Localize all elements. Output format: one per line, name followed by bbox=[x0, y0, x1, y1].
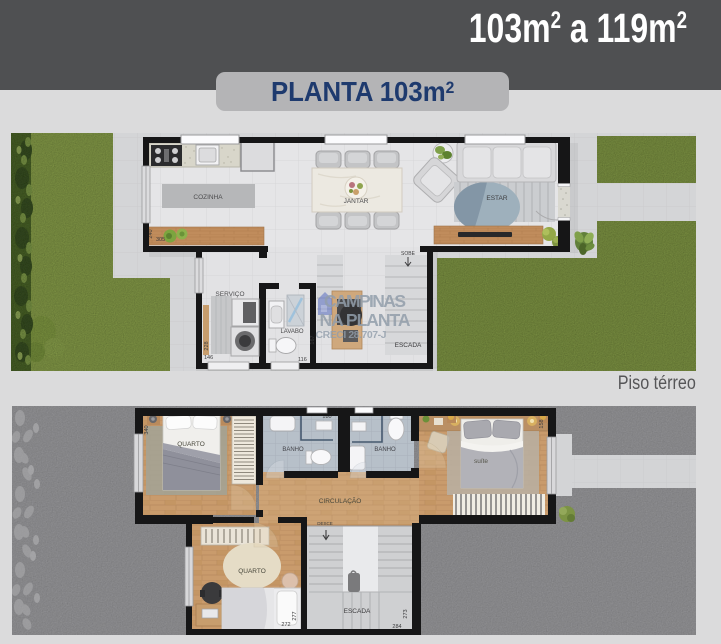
svg-text:228: 228 bbox=[204, 341, 210, 350]
svg-text:suíte: suíte bbox=[474, 458, 488, 465]
svg-text:ESTAR: ESTAR bbox=[486, 195, 507, 202]
svg-text:NA PLANTA: NA PLANTA bbox=[320, 310, 411, 330]
svg-text:305: 305 bbox=[156, 237, 165, 243]
svg-text:ESCADA: ESCADA bbox=[344, 608, 371, 615]
svg-text:SERVIÇO: SERVIÇO bbox=[215, 291, 244, 298]
svg-text:272: 272 bbox=[281, 622, 290, 628]
svg-text:BANHO: BANHO bbox=[374, 447, 396, 453]
svg-text:ESCADA: ESCADA bbox=[395, 342, 422, 349]
svg-text:277: 277 bbox=[292, 611, 298, 620]
svg-text:SOBE: SOBE bbox=[401, 251, 416, 257]
svg-text:DESCE: DESCE bbox=[317, 521, 333, 526]
svg-text:BANHO: BANHO bbox=[282, 447, 304, 453]
svg-text:QUARTO: QUARTO bbox=[177, 441, 205, 448]
svg-text:COZINHA: COZINHA bbox=[193, 194, 223, 201]
svg-text:QUARTO: QUARTO bbox=[238, 568, 266, 575]
svg-text:CIRCULAÇÃO: CIRCULAÇÃO bbox=[319, 496, 362, 505]
svg-text:LAVABO: LAVABO bbox=[280, 329, 303, 335]
svg-text:340: 340 bbox=[144, 425, 150, 434]
svg-text:273: 273 bbox=[403, 609, 409, 618]
svg-text:CAMPINAS: CAMPINAS bbox=[324, 291, 406, 311]
svg-text:JANTAR: JANTAR bbox=[344, 198, 369, 205]
svg-text:146: 146 bbox=[204, 355, 213, 361]
svg-text:116: 116 bbox=[298, 357, 307, 363]
svg-text:CRECI 28.707-J: CRECI 28.707-J bbox=[316, 329, 387, 341]
svg-text:158: 158 bbox=[539, 419, 545, 428]
